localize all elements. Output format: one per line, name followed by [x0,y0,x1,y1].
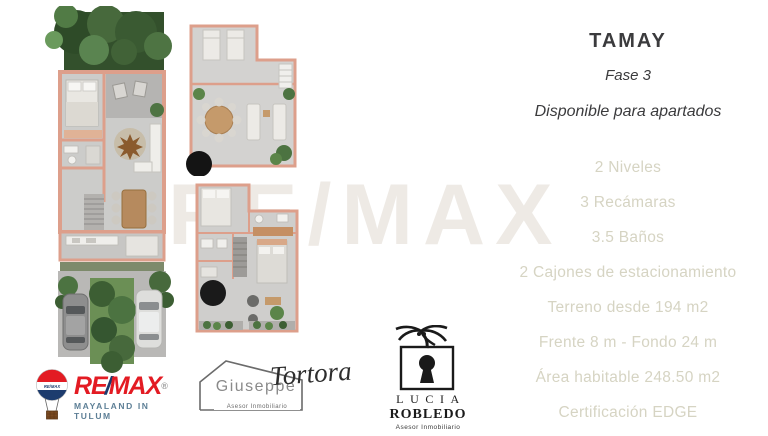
feature-bathrooms: 3.5 Baños [490,220,766,255]
giuseppe-tortora-logo: Giuseppe Tortora Asesor Inmobiliario [192,352,362,428]
roof-terrace-plan-drawing [181,20,303,176]
palm-tree-keyhole-icon [390,325,466,391]
upper-floor-plan [189,181,305,343]
giuseppe-last-name: Tortora [269,355,363,392]
shelf [279,64,292,88]
driveway [55,271,174,373]
flyer: RE/MAX [0,0,768,436]
stairs [84,194,104,230]
giuseppe-subtitle: Asesor Inmobiliario [214,404,300,410]
remax-subtitle: MAYALAND IN TULUM [74,401,188,421]
upper-floor-plan-drawing [189,181,305,343]
bed-right-icon [257,239,287,283]
ground-floor-plan [27,6,179,378]
remax-max: MAX [109,372,162,400]
kitchen-block [60,232,164,260]
house-main-level [60,72,164,232]
remax-wordmark: RE/MAX® MAYALAND IN TULUM [74,374,188,421]
roof-terrace-plan [181,20,303,176]
remax-re: RE [74,372,107,400]
ground-floor-plan-drawing [27,6,179,378]
patio-strip [60,262,164,271]
lucia-first-name: LUCIA [392,392,470,407]
bed-top-icon [201,188,231,226]
remax-balloon-icon: RE/MAX [32,368,72,424]
page-title: TAMAY [490,30,766,53]
lucia-robledo-logo: LUCIA ROBLEDO Asesor Inmobiliario [386,325,470,427]
feature-certification: Certificación EDGE [490,395,766,430]
round-table-icon [197,98,242,143]
remax-logo: RE/MAX RE/MAX® MAYALAND IN TULUM [32,366,188,430]
dining-table-icon [112,190,157,228]
garden-trees [45,6,172,70]
feature-front-depth: Frente 8 m - Fondo 24 m [490,325,766,360]
car-gray-icon [63,294,88,350]
bed-icon [66,80,98,126]
palm-tree-icon [396,326,447,348]
remax-brand-text: RE/MAX® [74,374,188,399]
spiral-stair-icon [186,151,212,176]
round-rug [114,128,146,160]
hall-stairs [233,237,247,277]
feature-living-area: Área habitable 248.50 m2 [490,360,766,395]
feature-lot-size: Terreno desde 194 m2 [490,290,766,325]
spiral-stair-upper-icon [200,280,226,306]
phase-label: Fase 3 [490,67,766,84]
feature-levels: 2 Niveles [490,150,766,185]
feature-bedrooms: 3 Recámaras [490,185,766,220]
feature-parking: 2 Cajones de estacionamiento [490,255,766,290]
registered-mark: ® [161,381,167,391]
feature-list: 2 Niveles 3 Recámaras 3.5 Baños 2 Cajone… [490,150,766,430]
info-panel: TAMAY Fase 3 Disponible para apartados 2… [490,30,766,430]
availability-label: Disponible para apartados [490,103,766,121]
lucia-last-name: ROBLEDO [386,407,470,423]
lucia-subtitle: Asesor Inmobiliario [386,424,470,431]
car-white-icon [136,290,162,348]
balloon-brand-text: RE/MAX [44,384,60,389]
